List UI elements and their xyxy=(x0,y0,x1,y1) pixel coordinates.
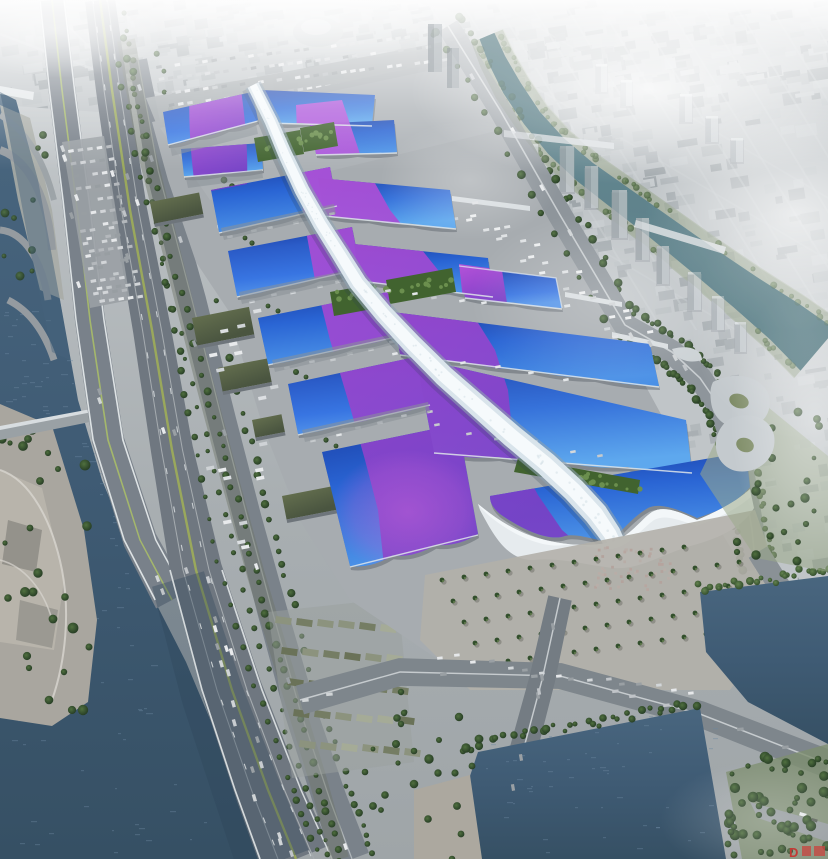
svg-text:D: D xyxy=(789,845,798,859)
